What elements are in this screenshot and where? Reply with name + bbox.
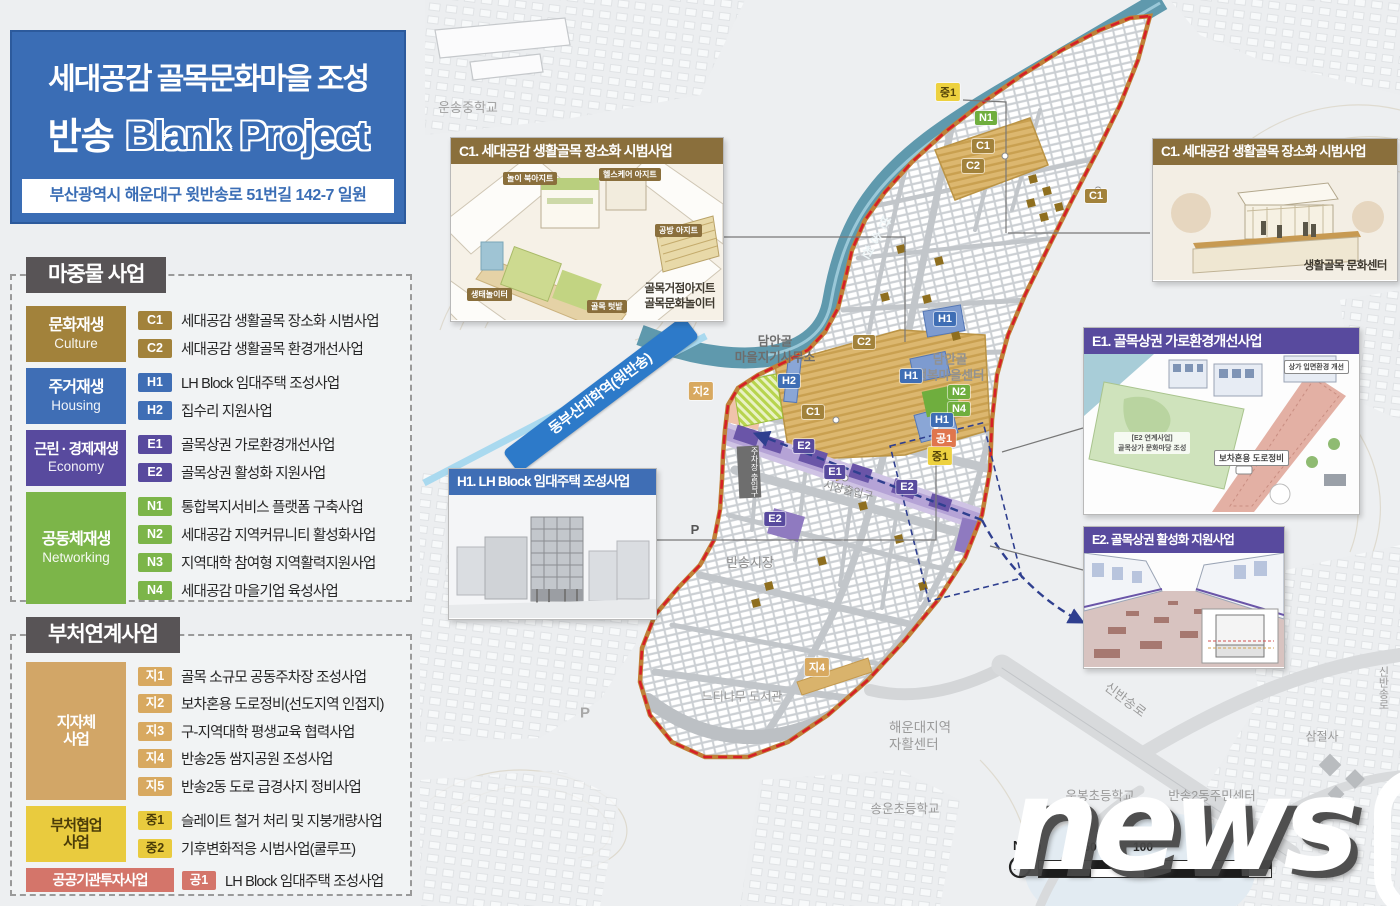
title-bansong: 반송 — [48, 116, 114, 157]
legend-item-e2: E2골목상권 활성화 지원사업 — [138, 458, 335, 486]
tag-eco-playground: 생태놀이터 — [467, 288, 512, 301]
legend-secondary-header: 부처연계사업 — [26, 617, 180, 653]
chip-n2: N2 — [138, 525, 172, 544]
chip-n4: N4 — [138, 581, 172, 600]
marker-h1-c: H1 — [931, 413, 953, 427]
chip-jung2: 중2 — [138, 839, 172, 858]
legend-item-ji5: 지5반송2동 도로 급경사지 정비사업 — [138, 772, 384, 800]
callout-c1-left-title: C1. 세대공감 생활골목 장소화 시범사업 — [451, 138, 723, 164]
chip-ji1: 지1 — [138, 667, 172, 686]
legend-item-h2: H2집수리 지원사업 — [138, 396, 339, 424]
e2-illustration — [1084, 553, 1284, 667]
poster-title-line2: 반송Blank Project — [12, 106, 404, 160]
callout-h1-title: H1. LH Block 임대주택 조성사업 — [449, 469, 656, 495]
marker-e2-b: E2 — [896, 480, 917, 494]
callout-e2-body — [1084, 553, 1284, 667]
category-housing: 주거재생 Housing H1LH Block 임대주택 조성사업 H2집수리 … — [26, 368, 410, 424]
callout-c1-left: C1. 세대공감 생활골목 장소화 시범사업 놀이 북아지트 — [450, 137, 724, 322]
legend-primary-header: 마중물 사업 — [26, 257, 166, 293]
news1-one-badge: 1 — [1374, 768, 1400, 906]
category-housing-box: 주거재생 Housing — [26, 368, 126, 424]
chip-e1: E1 — [138, 435, 172, 454]
legend-item-e1: E1골목상권 가로환경개선사업 — [138, 430, 335, 458]
label-samjeolsa: 삼절사 — [1305, 730, 1338, 745]
callout-c1-right-body: 생활골목 문화센터 — [1153, 165, 1397, 280]
chip-e2: E2 — [138, 463, 172, 482]
category-culture: 문화재생 Culture C1세대공감 생활골목 장소화 시범사업 C2세대공감… — [26, 306, 410, 362]
marker-ji4: 지4 — [805, 658, 829, 676]
tag-healthcare-azit: 헬스케어 아지트 — [599, 168, 661, 181]
callout-c1-right: C1. 세대공감 생활골목 장소화 시범사업 생활골목 문화센터 — [1152, 138, 1398, 282]
lime-block — [733, 374, 783, 427]
legend-item-n4: N4세대공감 마을기업 육성사업 — [138, 576, 376, 604]
marker-jung1-top: 중1 — [936, 83, 960, 101]
chip-h2: H2 — [138, 401, 172, 420]
callout-e1-body: 상가 입면환경 개선 [E2 연계사업] 골목상가 문화마당 조성 보차혼용 도… — [1084, 354, 1359, 512]
callout-h1: H1. LH Block 임대주택 조성사업 — [448, 468, 657, 620]
legend-secondary: 부처연계사업 지자체 사업 지1골목 소규모 공동주차장 조성사업 지2보차혼용… — [10, 634, 412, 896]
label-damangol-center: 담안골 행복마을센터 — [915, 352, 984, 383]
legend-item-n1: N1통합복지서비스 플랫폼 구축사업 — [138, 492, 376, 520]
legend-primary: 마중물 사업 문화재생 Culture C1세대공감 생활골목 장소화 시범사업… — [10, 274, 412, 602]
marker-n2: N2 — [948, 385, 970, 399]
poster-title-line1: 세대공감 골목문화마을 조성 — [12, 54, 404, 98]
callout-e1-title: E1. 골목상권 가로환경개선사업 — [1084, 328, 1359, 354]
marker-c1-center: C1 — [802, 405, 824, 419]
legend-item-ji4: 지4반송2동 쌈지공원 조성사업 — [138, 745, 384, 773]
callout-e1: E1. 골목상권 가로환경개선사업 상가 입면환경 개선 [ — [1083, 327, 1360, 515]
tag-play-book-azit: 놀이 북아지트 — [503, 172, 557, 185]
legend-item-jung2: 중2기후변화적응 시범사업(쿨루프) — [138, 834, 382, 862]
label-library: 느티나무 도서관 — [702, 690, 783, 705]
legend-item-ji1: 지1골목 소규모 공동주차장 조성사업 — [138, 662, 384, 690]
chip-jung1: 중1 — [138, 811, 172, 830]
marker-ji2: 지2 — [689, 382, 713, 400]
category-economy: 근린 · 경제재생 Economy E1골목상권 가로환경개선사업 E2골목상권… — [26, 430, 410, 486]
label-songun-school: 송운초등학교 — [870, 802, 939, 818]
label-parking-p2: P — [580, 705, 590, 724]
label-bansong-market: 반송시장 — [726, 555, 774, 571]
marker-c2-b: C2 — [853, 335, 875, 349]
marker-c1-east: C1 — [1085, 189, 1107, 203]
group-gonggong-name: 공공기관투자사업 — [52, 872, 147, 888]
legend-item-h1: H1LH Block 임대주택 조성사업 — [138, 368, 339, 396]
legend-item-gong1: 공1LH Block 임대주택 조성사업 — [182, 868, 383, 892]
category-networking-box: 공동체재생 Networking — [26, 492, 126, 604]
marker-c2-a: C2 — [962, 159, 984, 173]
group-gonggong: 공공기관투자사업 공1LH Block 임대주택 조성사업 — [26, 868, 410, 892]
e1-tag-road: 보차혼용 도로정비 — [1214, 450, 1289, 466]
category-economy-box: 근린 · 경제재생 Economy — [26, 430, 126, 486]
c1-right-caption: 생활골목 문화센터 — [1304, 259, 1387, 274]
group-bucheo-box: 부처협업 사업 — [26, 806, 126, 862]
legend-item-n3: N3지역대학 참여형 지역활력지원사업 — [138, 548, 376, 576]
h1-illustration — [449, 495, 656, 618]
poster-canvas: 세대공감 골목문화마을 조성 반송Blank Project 부산광역시 해운대… — [0, 0, 1400, 906]
group-bucheo-name: 부처협업 사업 — [50, 817, 101, 852]
marker-h1-a: H1 — [934, 312, 956, 326]
marker-gong1: 공1 — [932, 429, 956, 447]
legend-item-c1: C1세대공감 생활골목 장소화 시범사업 — [138, 306, 379, 334]
category-economy-name: 근린 · 경제재생 — [34, 442, 118, 459]
news1-wordmark: news — [1008, 762, 1352, 890]
label-sinbansong-ro-2: 신반송로 — [1375, 666, 1389, 710]
label-parking-entrance: 주차장 출입구 — [740, 447, 758, 497]
chip-gong1: 공1 — [182, 871, 216, 890]
chip-ji5: 지5 — [138, 777, 172, 796]
title-blank-project: Blank Project — [126, 114, 369, 158]
label-damangol-office: 담안골 마을지기사무소 — [735, 334, 816, 365]
legend-item-ji3: 지3구-지역대학 평생교육 협력사업 — [138, 717, 384, 745]
label-jahwal-center: 해운대지역 자활센터 — [889, 720, 951, 754]
marker-h1-b: H1 — [900, 369, 922, 383]
callout-c1-left-body: 놀이 북아지트 헬스케어 아지트 공방 아지트 생태놀이터 골목 텃밭 골목거점… — [451, 164, 723, 320]
marker-e2-c: E2 — [764, 512, 785, 526]
category-culture-en: Culture — [54, 336, 98, 351]
category-housing-en: Housing — [51, 398, 101, 413]
category-networking-en: Networking — [42, 550, 110, 565]
chip-ji2: 지2 — [138, 694, 172, 713]
marker-e2-a: E2 — [793, 439, 814, 453]
category-networking: 공동체재생 Networking N1통합복지서비스 플랫폼 구축사업 N2세대… — [26, 492, 410, 604]
e1-tag-facade: 상가 입면환경 개선 — [1284, 360, 1349, 374]
callout-e2: E2. 골목상권 활성화 지원사업 — [1083, 526, 1285, 669]
callout-e2-title: E2. 골목상권 활성화 지원사업 — [1084, 527, 1284, 553]
category-economy-en: Economy — [48, 459, 104, 474]
label-unsong-middle-school: 운송중학교 — [438, 100, 498, 116]
chip-ji3: 지3 — [138, 722, 172, 741]
marker-n1: N1 — [975, 111, 997, 125]
c1-left-caption: 골목거점아지트 골목문화놀이터 — [644, 282, 715, 312]
legend-item-ji2: 지2보차혼용 도로정비(선도지역 인접지) — [138, 690, 384, 718]
chip-n3: N3 — [138, 553, 172, 572]
category-culture-name: 문화재생 — [49, 317, 104, 335]
legend-item-jung1: 중1슬레이트 철거 처리 및 지붕개량사업 — [138, 806, 382, 834]
callout-h1-body — [449, 495, 656, 618]
chip-c2: C2 — [138, 339, 172, 358]
category-culture-box: 문화재생 Culture — [26, 306, 126, 362]
callout-c1-right-title: C1. 세대공감 생활골목 장소화 시범사업 — [1153, 139, 1397, 165]
group-bucheo: 부처협업 사업 중1슬레이트 철거 처리 및 지붕개량사업 중2기후변화적응 시… — [26, 806, 410, 862]
marker-h2: H2 — [778, 374, 800, 388]
news1-watermark: news 1 — [1008, 762, 1400, 906]
marker-e1: E1 — [824, 465, 845, 479]
group-gonggong-box: 공공기관투자사업 — [26, 868, 174, 892]
project-address: 부산광역시 해운대구 윗반송로 51번길 142-7 일원 — [22, 179, 394, 213]
chip-ji4: 지4 — [138, 749, 172, 768]
legend-item-c2: C2세대공감 생활골목 환경개선사업 — [138, 334, 379, 362]
group-jijache: 지자체 사업 지1골목 소규모 공동주차장 조성사업 지2보차혼용 도로정비(선… — [26, 662, 410, 800]
e1-tag-e2-link: [E2 연계사업] 골목상가 문화마당 조성 — [1114, 432, 1190, 454]
category-networking-name: 공동체재생 — [42, 531, 111, 549]
tag-alley-garden: 골목 텃밭 — [587, 300, 627, 313]
marker-jung1-mid: 중1 — [928, 447, 952, 465]
chip-n1: N1 — [138, 497, 172, 516]
tag-workshop-azit: 공방 아지트 — [655, 224, 702, 237]
category-housing-name: 주거재생 — [49, 379, 104, 397]
chip-h1: H1 — [138, 373, 172, 392]
group-jijache-box: 지자체 사업 — [26, 662, 126, 800]
label-parking-p1: P — [691, 522, 700, 538]
group-jijache-name: 지자체 사업 — [57, 714, 95, 749]
marker-c1-a: C1 — [972, 139, 994, 153]
chip-c1: C1 — [138, 311, 172, 330]
title-panel: 세대공감 골목문화마을 조성 반송Blank Project 부산광역시 해운대… — [10, 30, 406, 224]
legend-item-n2: N2세대공감 지역커뮤니티 활성화사업 — [138, 520, 376, 548]
